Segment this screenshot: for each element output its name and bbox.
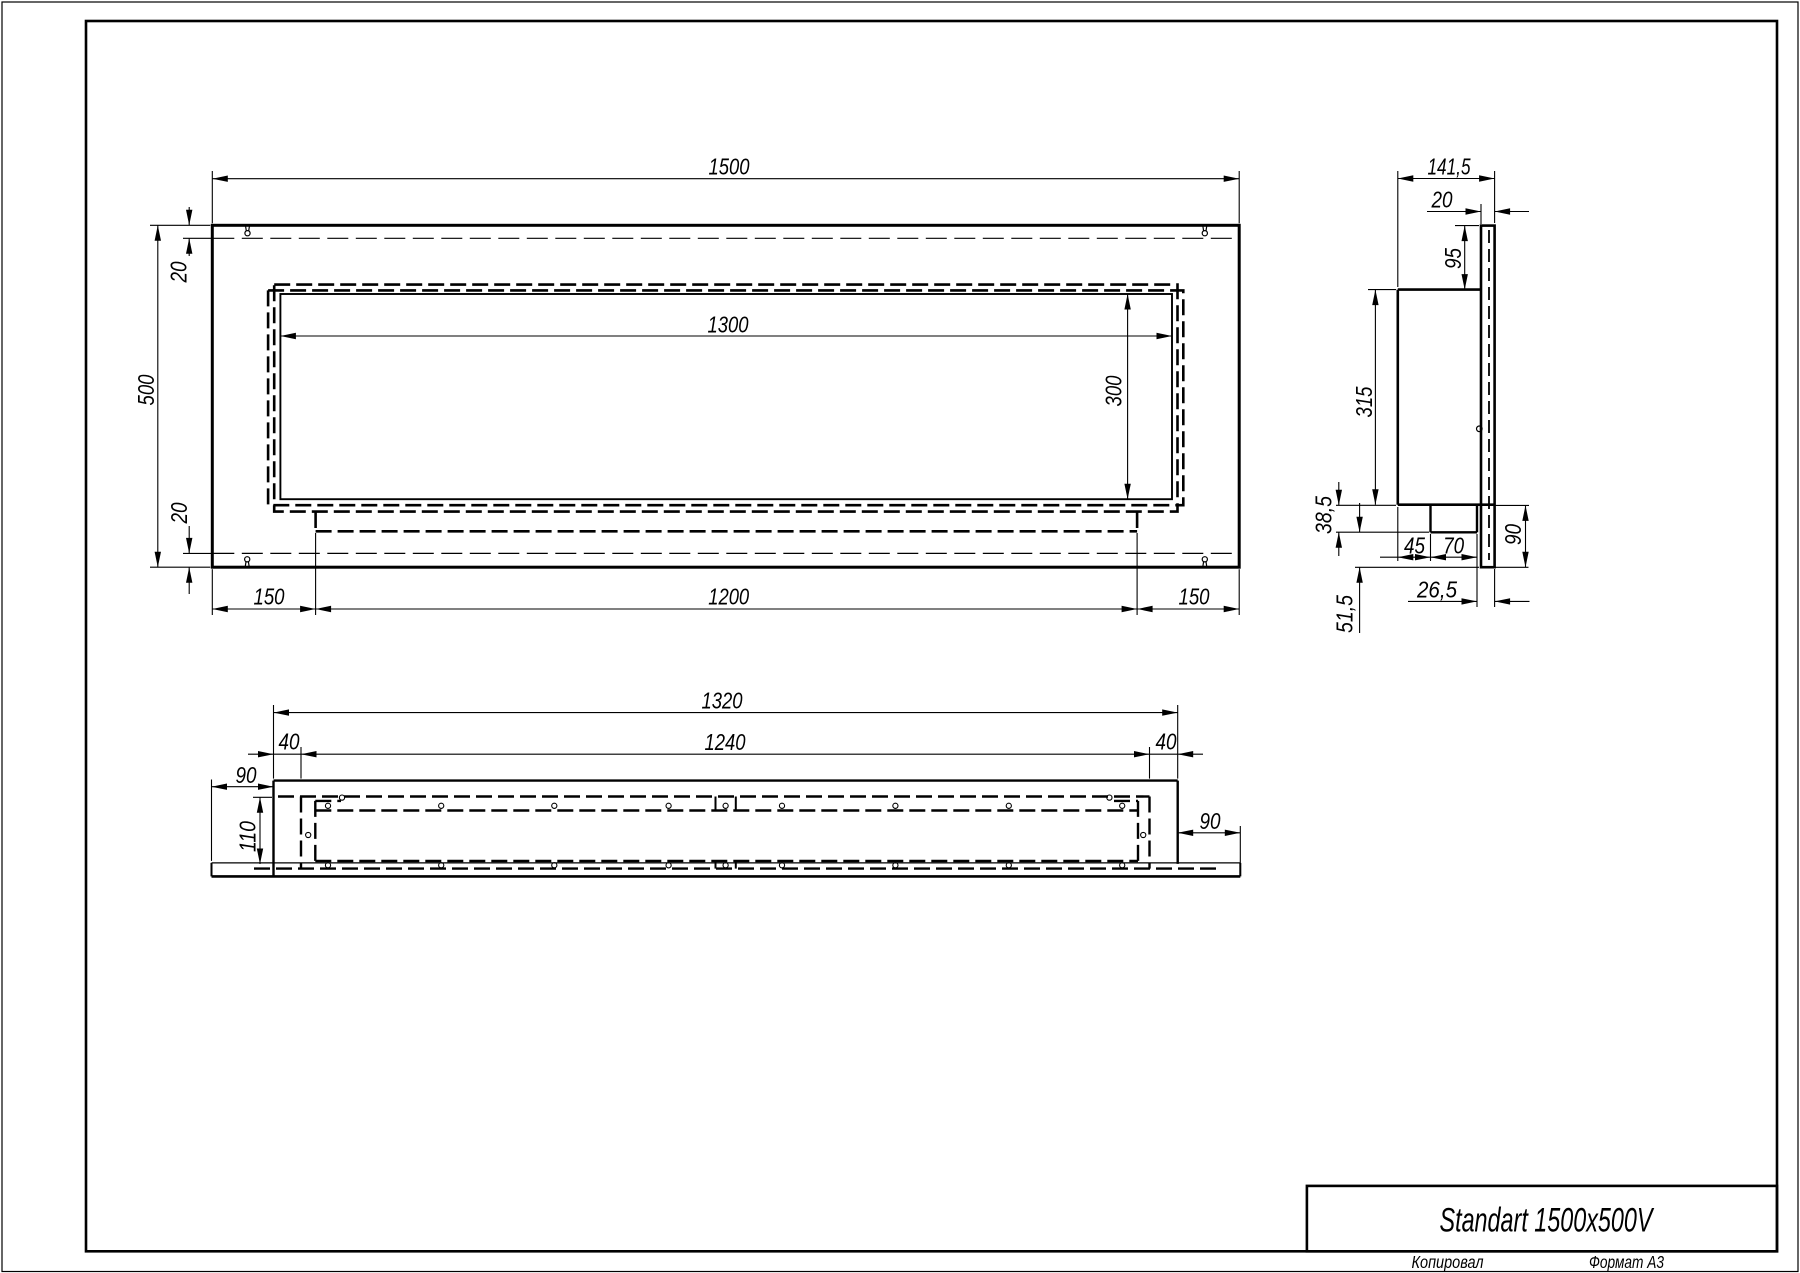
svg-text:Формат А3: Формат А3	[1589, 1252, 1664, 1272]
svg-text:Копировал: Копировал	[1412, 1252, 1484, 1272]
svg-text:Standart 1500x500V: Standart 1500x500V	[1440, 1202, 1655, 1240]
svg-text:110: 110	[235, 821, 261, 852]
svg-text:150: 150	[1179, 584, 1210, 610]
svg-text:1320: 1320	[702, 687, 743, 713]
svg-text:1200: 1200	[708, 584, 749, 610]
svg-text:500: 500	[133, 374, 159, 405]
svg-text:141,5: 141,5	[1428, 153, 1471, 179]
svg-text:20: 20	[166, 261, 192, 283]
svg-text:1240: 1240	[705, 729, 746, 755]
svg-text:1300: 1300	[708, 312, 749, 338]
svg-text:300: 300	[1101, 375, 1127, 406]
svg-text:150: 150	[254, 584, 285, 610]
svg-text:26,5: 26,5	[1416, 577, 1457, 603]
svg-text:38,5: 38,5	[1311, 496, 1337, 534]
svg-text:40: 40	[1156, 729, 1177, 755]
svg-text:20: 20	[166, 502, 192, 524]
svg-text:40: 40	[279, 729, 300, 755]
svg-text:51,5: 51,5	[1332, 595, 1358, 633]
svg-text:20: 20	[1431, 187, 1453, 213]
svg-text:90: 90	[236, 762, 257, 788]
svg-text:315: 315	[1351, 386, 1377, 417]
svg-text:70: 70	[1443, 533, 1464, 559]
svg-text:90: 90	[1200, 808, 1221, 834]
svg-text:45: 45	[1404, 533, 1425, 559]
svg-text:1500: 1500	[709, 153, 750, 179]
svg-text:90: 90	[1500, 524, 1526, 545]
svg-text:95: 95	[1440, 248, 1466, 269]
